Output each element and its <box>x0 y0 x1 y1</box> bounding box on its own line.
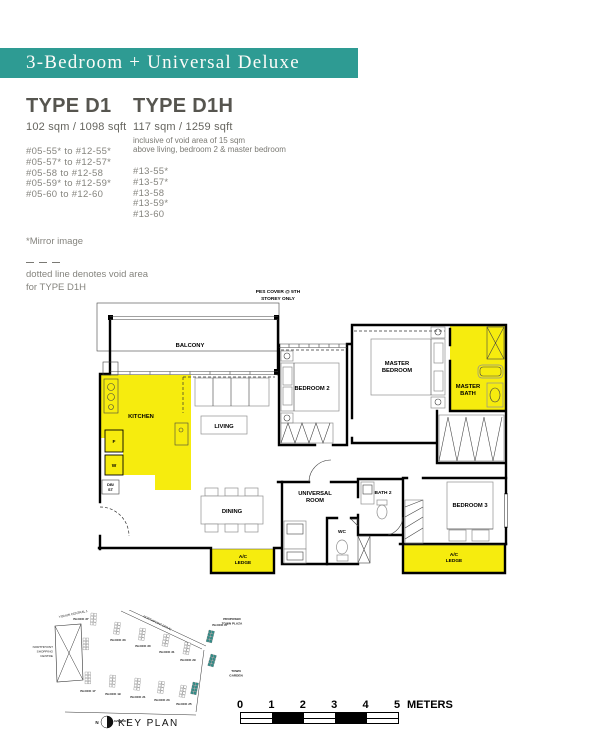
floor-plan: PES COVER @ 5TH STOREY ONLY <box>85 283 515 613</box>
highlighted-block <box>206 630 214 643</box>
bedroom2-label: BEDROOM 2 <box>294 386 329 392</box>
ac-ledge-label: A/C <box>450 552 459 558</box>
scale-tick: 1 <box>268 699 274 711</box>
svg-text:BLOCK 17: BLOCK 17 <box>80 689 96 693</box>
scale-tick: 2 <box>300 699 306 711</box>
scale-tick: 3 <box>331 699 337 711</box>
kitchen-label: KITCHEN <box>128 414 154 420</box>
master-bath-label: MASTER <box>456 384 481 390</box>
dashed-line-sample <box>26 262 60 263</box>
scale-ticks: 012345 <box>240 699 397 711</box>
svg-text:BLOCK 21: BLOCK 21 <box>130 695 146 699</box>
universal-room-fixtures <box>284 519 358 563</box>
entry-door-arc <box>100 507 129 536</box>
highlighted-block <box>208 654 217 667</box>
garden-label: TOWN <box>231 669 241 673</box>
shopping-label: NORTHPOINT <box>33 645 54 649</box>
ac-ledge-label: LEDGE <box>446 558 463 564</box>
balcony-label: BALCONY <box>176 343 205 349</box>
pes-label: PES COVER @ 5TH <box>256 289 301 295</box>
sofa <box>195 378 269 406</box>
svg-text:BLOCK 33: BLOCK 33 <box>110 638 126 642</box>
scale-tick: 5 <box>394 699 400 711</box>
master-bedroom-label: BEDROOM <box>382 368 412 374</box>
unit-range: #05-60 to #12-60 <box>26 190 111 201</box>
shopping-label: CENTRE <box>40 654 53 658</box>
void-note-line: inclusive of void area of 15 sqm <box>133 136 286 145</box>
shopping-label: SHOPPING <box>37 650 54 654</box>
legend-line: dotted line denotes void area <box>26 268 148 281</box>
svg-text:BLOCK 29: BLOCK 29 <box>180 658 196 662</box>
void-note-line: above living, bedroom 2 & master bedroom <box>133 145 286 154</box>
universal-room-label: ROOM <box>306 498 324 504</box>
unit-range: #13-60 <box>133 210 168 221</box>
svg-text:BLOCK 23: BLOCK 23 <box>154 698 170 702</box>
bedroom3-furniture <box>405 482 493 543</box>
type-d1h-void-note: inclusive of void area of 15 sqm above l… <box>133 136 286 154</box>
scale-tick: 0 <box>237 699 243 711</box>
wc-toilet <box>337 540 348 554</box>
scale-unit: METERS <box>407 699 453 711</box>
pes-label: STOREY ONLY <box>261 296 296 302</box>
universal-room-label: UNIVERSAL <box>298 491 332 497</box>
svg-text:BLOCK 31: BLOCK 31 <box>159 650 175 654</box>
bath2-label: BATH 2 <box>375 490 392 496</box>
st-label: ST <box>108 487 114 492</box>
fridge-label: F <box>113 439 116 445</box>
road-label: NORTHPOINT DRIVE <box>143 614 172 631</box>
type-d1-unit-list: #05-55* to #12-55*#05-57* to #12-57*#05-… <box>26 147 111 201</box>
type-d1-area: 102 sqm / 1098 sqft <box>26 121 126 133</box>
plaza-label: TOWN PLAZA <box>222 622 243 626</box>
unit-range: #13-57* <box>133 178 168 189</box>
garden-label: GARDEN <box>229 674 243 678</box>
title-banner: 3-Bedroom + Universal Deluxe <box>0 48 358 78</box>
north-label: N <box>95 720 98 725</box>
block-clusters <box>83 613 216 698</box>
mirror-image-note: *Mirror image <box>26 236 83 247</box>
bedroom2-furniture <box>281 351 339 443</box>
compass: N <box>95 716 113 728</box>
scale-bar: 012345 METERS <box>240 699 470 725</box>
shopping-centre: NORTHPOINT SHOPPING CENTRE <box>33 624 83 682</box>
svg-text:BLOCK 37: BLOCK 37 <box>73 617 89 621</box>
dining-label: DINING <box>222 509 243 515</box>
wardrobe <box>405 500 423 543</box>
ac-ledge-label: A/C <box>239 554 248 560</box>
master-bedroom-label: MASTER <box>385 361 410 367</box>
keyplan-title: KEY PLAN <box>118 718 179 729</box>
svg-text:BLOCK 30: BLOCK 30 <box>135 644 151 648</box>
page-title: 3-Bedroom + Universal Deluxe <box>26 52 300 73</box>
living-label: LIVING <box>214 424 234 430</box>
plaza-label: PROPOSED <box>223 617 241 621</box>
wc-label: WC <box>338 529 347 535</box>
type-d1h-area: 117 sqm / 1259 sqft <box>133 121 233 133</box>
scale-tick: 4 <box>363 699 369 711</box>
floorplan-brochure-page: 3-Bedroom + Universal Deluxe TYPE D1 102… <box>0 0 607 750</box>
pes-boundary: PES COVER @ 5TH STOREY ONLY <box>97 289 301 351</box>
highlighted-block <box>191 682 199 695</box>
ac-ledge-label: LEDGE <box>235 560 252 566</box>
svg-text:BLOCK 25: BLOCK 25 <box>176 702 192 706</box>
svg-text:BLOCK 19: BLOCK 19 <box>105 692 121 696</box>
washer-label: W <box>112 463 117 469</box>
key-plan: YISHUN CENTRAL 1 NORTHPOINT DRIVE YISHUN… <box>25 610 255 740</box>
type-d1-title: TYPE D1 <box>26 95 111 118</box>
master-bath-label: BATH <box>460 391 476 397</box>
scale-bar-graphic <box>240 712 399 724</box>
type-d1h-unit-list: #13-55*#13-57*#13-58#13-59*#13-60 <box>133 167 168 221</box>
type-d1h-title: TYPE D1H <box>133 95 233 118</box>
bedroom3-label: BEDROOM 3 <box>452 503 488 509</box>
toilet <box>377 505 387 519</box>
unit-range: #05-57* to #12-57* <box>26 158 111 169</box>
